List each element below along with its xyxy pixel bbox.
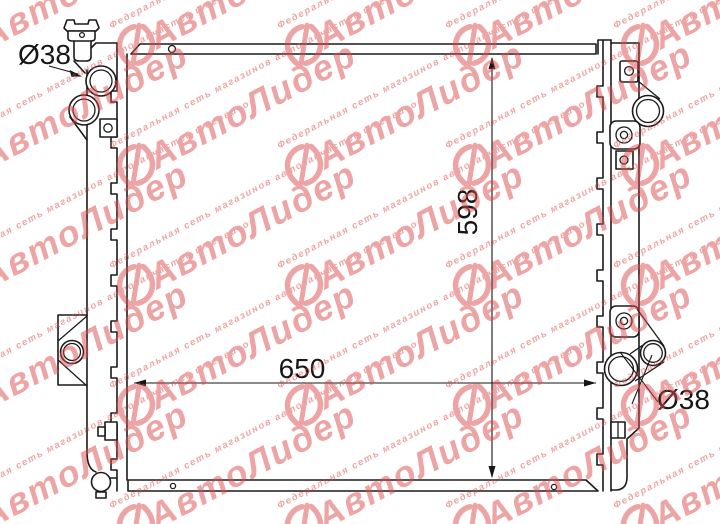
left-mount-bracket [100, 119, 117, 137]
top-bar [131, 40, 611, 54]
dimension-label-inlet-dia: Ø38 [18, 39, 71, 70]
watermark-layer [0, 0, 720, 524]
radiator-diagram-page: Федеральная сеть магазинов автозапчастей… [0, 0, 720, 524]
radiator-technical-drawing: Федеральная сеть магазинов автозапчастей… [0, 0, 720, 524]
